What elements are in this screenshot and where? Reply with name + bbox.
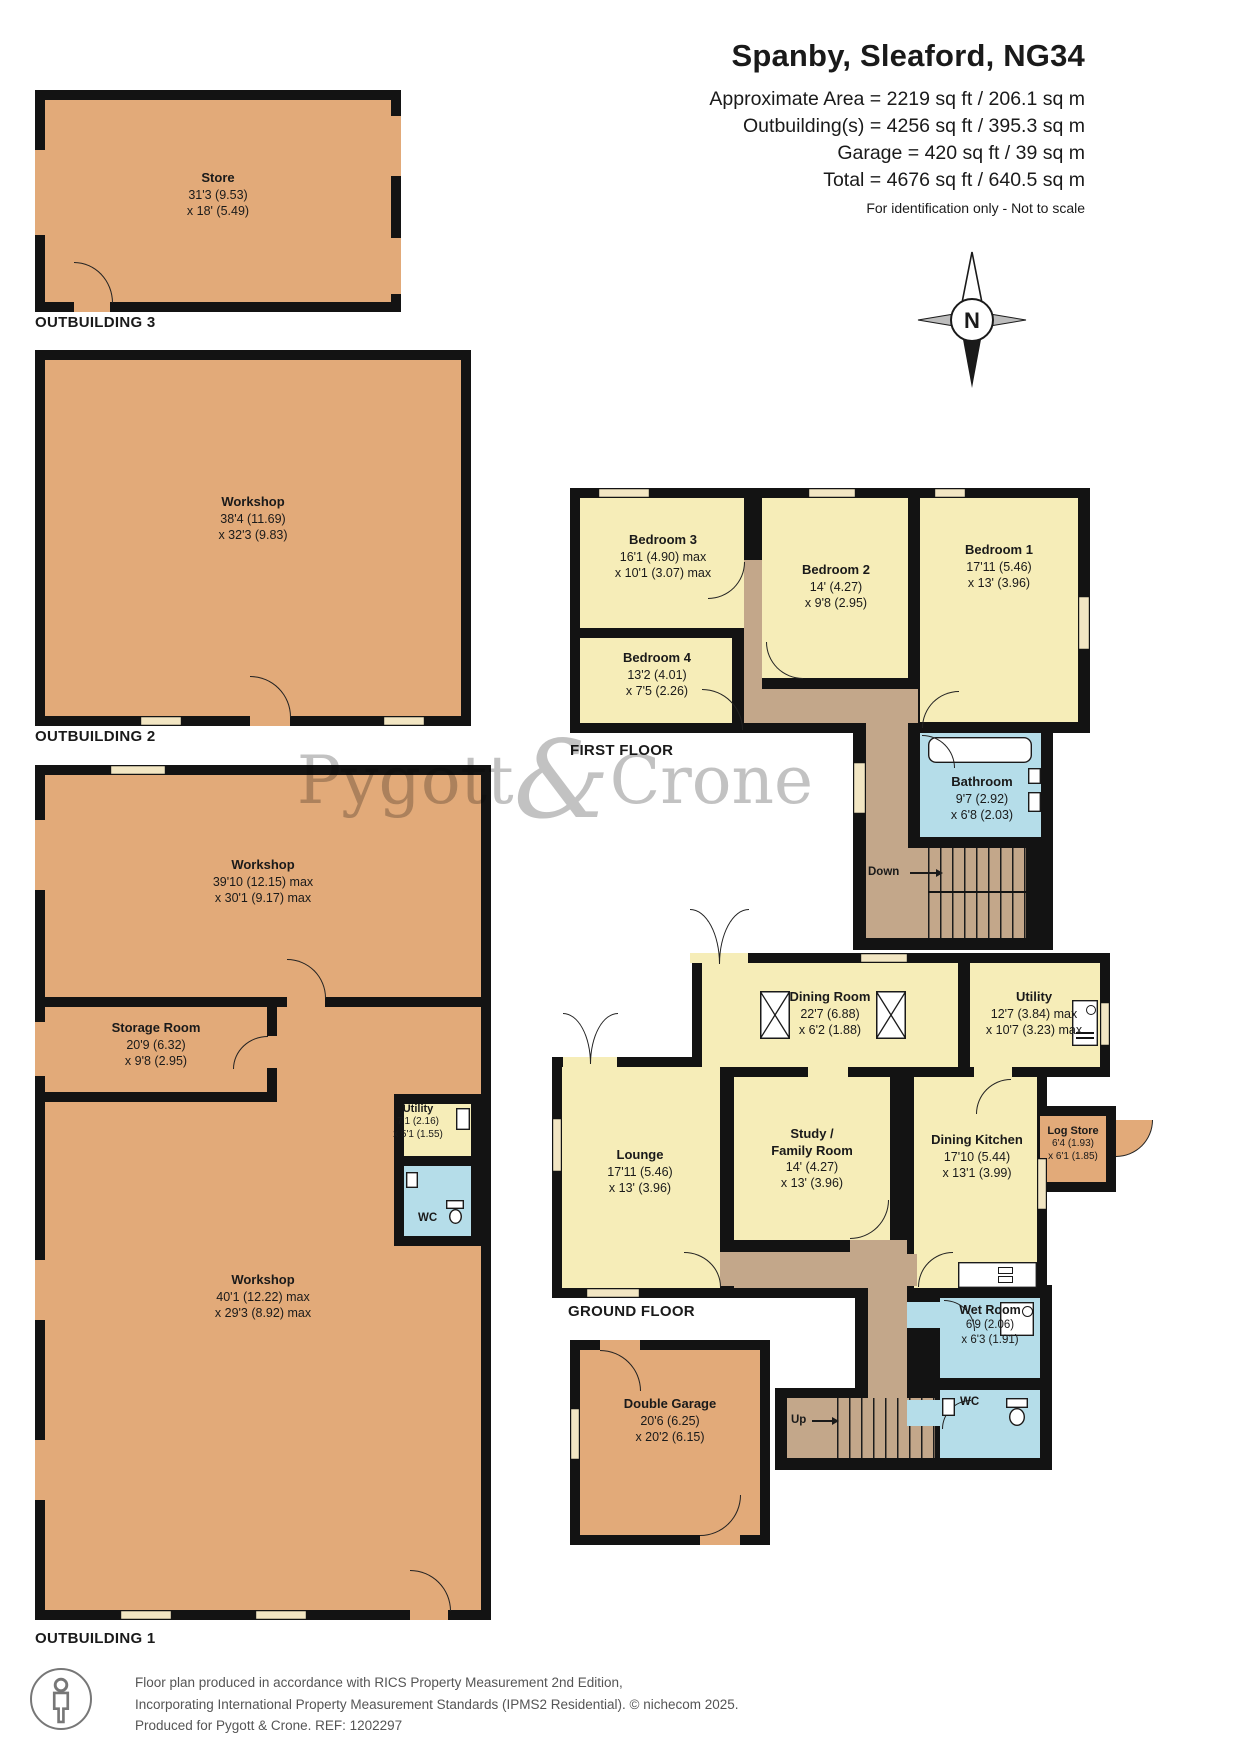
down-arrow-head	[936, 869, 943, 877]
page-title: Spanby, Sleaford, NG34	[620, 38, 1085, 74]
storage-door-gap	[267, 1036, 277, 1068]
total-area: Total = 4676 sq ft / 640.5 sq m	[620, 167, 1085, 194]
room-bedroom1	[920, 498, 1078, 722]
ob3-door-gap	[74, 302, 110, 312]
utility-kitchen-gap	[974, 1067, 1012, 1077]
garage-label: Double Garage 20'6 (6.25) x 20'2 (6.15)	[590, 1396, 750, 1445]
entrance-lounge-arc-right	[590, 1013, 618, 1064]
entrance-dining-arc-left	[690, 909, 720, 964]
ff-window-landing	[853, 762, 866, 814]
ob1-window-bottom-1	[120, 1610, 172, 1620]
ob1-opening-left-1	[35, 820, 45, 890]
storage-label: Storage Room 20'9 (6.32) x 9'8 (2.95)	[76, 1020, 236, 1069]
ob1-utility-label: Utility 7'1 (2.16) x 5'1 (1.55)	[362, 1102, 474, 1142]
up-arrow-line	[812, 1420, 832, 1422]
ob1-opening-left-2	[35, 1022, 45, 1076]
wc-label: WC	[960, 1396, 979, 1408]
kitchen-label: Dining Kitchen 17'10 (5.44) x 13'1 (3.99…	[896, 1132, 1058, 1181]
lounge-window-bottom	[586, 1288, 640, 1298]
footer-line-2: Incorporating International Property Mea…	[135, 1694, 1115, 1716]
workshop-top-door-gap	[287, 997, 325, 1007]
person-scale-icon	[30, 1668, 92, 1730]
footer-line-1: Floor plan produced in accordance with R…	[135, 1672, 1115, 1694]
ob1-wc-cistern-icon	[446, 1200, 464, 1209]
lounge-door-gap	[720, 1252, 734, 1286]
ob1-window-top	[110, 765, 166, 775]
lounge-label: Lounge 17'11 (5.46) x 13' (3.96)	[560, 1147, 720, 1196]
ob2-window-2	[383, 716, 425, 726]
dining-window-top	[860, 953, 908, 963]
entrance-lounge-arc-left	[563, 1013, 591, 1064]
ff-window-top-2	[808, 488, 856, 498]
floorplan-page: Spanby, Sleaford, NG34 Approximate Area …	[0, 0, 1241, 1755]
ff-landing-3	[866, 723, 908, 848]
ob1-wc-basin-icon	[406, 1172, 418, 1188]
ob2-window-1	[140, 716, 182, 726]
ob2-workshop-label: Workshop 38'4 (11.69) x 32'3 (9.83)	[148, 494, 358, 543]
footer-disclaimer: Floor plan produced in accordance with R…	[135, 1672, 1115, 1737]
svg-text:N: N	[964, 308, 980, 333]
ob1-opening-left-4	[35, 1440, 45, 1500]
ground-floor-label: GROUND FLOOR	[568, 1303, 695, 1320]
bathroom-label: Bathroom 9'7 (2.92) x 6'8 (2.03)	[926, 774, 1038, 823]
bedroom3-label: Bedroom 3 16'1 (4.90) max x 10'1 (3.07) …	[582, 532, 744, 581]
first-floor-label: FIRST FLOOR	[570, 742, 673, 759]
logstore-label: Log Store 6'4 (1.93) x 6'1 (1.85)	[1040, 1124, 1106, 1164]
approximate-area: Approximate Area = 2219 sq ft / 206.1 sq…	[620, 86, 1085, 113]
compass-icon: N	[912, 250, 1032, 390]
ff-window-top-3	[934, 488, 966, 498]
kitchen-sink-icon	[998, 1267, 1013, 1274]
workshop-bottom-label: Workshop 40'1 (12.22) max x 29'3 (8.92) …	[183, 1272, 343, 1321]
garage-area: Garage = 420 sq ft / 39 sq m	[620, 140, 1085, 167]
stairs-mid-rail	[928, 891, 1026, 893]
bedroom2-label: Bedroom 2 14' (4.27) x 9'8 (2.95)	[766, 562, 906, 611]
wc-cistern-icon	[1006, 1398, 1028, 1408]
scale-disclaimer: For identification only - Not to scale	[620, 200, 1085, 216]
ff-window-right	[1078, 596, 1090, 650]
kitchen-sink-icon-2	[998, 1276, 1013, 1283]
down-stairs-treads	[928, 848, 1026, 938]
kitchen-counter	[958, 1262, 1037, 1288]
ob3-opening-right-2	[391, 238, 401, 294]
entrance-dining-arc-right	[719, 909, 749, 964]
ob2-door-gap	[250, 716, 290, 726]
garage-door-gap-bottom	[700, 1535, 740, 1545]
dining-label: Dining Room 22'7 (6.88) x 6'2 (1.88)	[740, 989, 920, 1038]
outbuildings-area: Outbuilding(s) = 4256 sq ft / 395.3 sq m	[620, 113, 1085, 140]
ampersand: &	[514, 718, 610, 843]
store-label: Store 31'3 (9.53) x 18' (5.49)	[118, 170, 318, 219]
wc-toilet-icon	[1009, 1408, 1025, 1426]
utility-label: Utility 12'7 (3.84) max x 10'7 (3.23) ma…	[958, 989, 1110, 1038]
ob1-wc-toilet-icon	[449, 1209, 462, 1224]
ob1-opening-left-3	[35, 1260, 45, 1320]
ob1-wc-label: WC	[418, 1212, 437, 1224]
garage-window-left	[570, 1408, 580, 1460]
area-summary: Approximate Area = 2219 sq ft / 206.1 sq…	[620, 86, 1085, 194]
logstore-door-arc	[1116, 1120, 1153, 1157]
ff-landing-2	[744, 689, 918, 723]
footer-line-3: Produced for Pygott & Crone. REF: 120229…	[135, 1715, 1115, 1737]
wc-basin-icon	[942, 1398, 955, 1416]
wc-door-gap	[907, 1400, 940, 1426]
ob3-opening-right-1	[391, 116, 401, 176]
ob1-window-bottom-2	[255, 1610, 307, 1620]
ob3-opening-left	[35, 150, 45, 235]
outbuilding-2-label: OUTBUILDING 2	[35, 728, 156, 745]
outbuilding-3-label: OUTBUILDING 3	[35, 314, 156, 331]
outbuilding-1-label: OUTBUILDING 1	[35, 1630, 156, 1647]
bedroom4-label: Bedroom 4 13'2 (4.01) x 7'5 (2.26)	[582, 650, 732, 699]
dining-study-gap	[808, 1067, 848, 1077]
down-label: Down	[868, 866, 899, 878]
wetroom-label: Wet Room 6'9 (2.06) x 6'3 (1.91)	[934, 1302, 1046, 1347]
ob1-mid-area	[277, 1007, 481, 1102]
ff-window-top-1	[598, 488, 650, 498]
workshop-top-label: Workshop 39'10 (12.15) max x 30'1 (9.17)…	[183, 857, 343, 906]
up-label: Up	[791, 1414, 806, 1426]
up-arrow-head	[832, 1417, 839, 1425]
garage-door-gap-top	[600, 1340, 640, 1350]
kitchen-door-gap	[905, 1254, 917, 1286]
workshop-bottom-door-gap	[410, 1610, 448, 1620]
study-label: Study / Family Room 14' (4.27) x 13' (3.…	[732, 1126, 892, 1191]
study-door-gap	[850, 1240, 888, 1252]
bedroom1-label: Bedroom 1 17'11 (5.46) x 13' (3.96)	[922, 542, 1076, 591]
down-arrow-line	[910, 872, 936, 874]
